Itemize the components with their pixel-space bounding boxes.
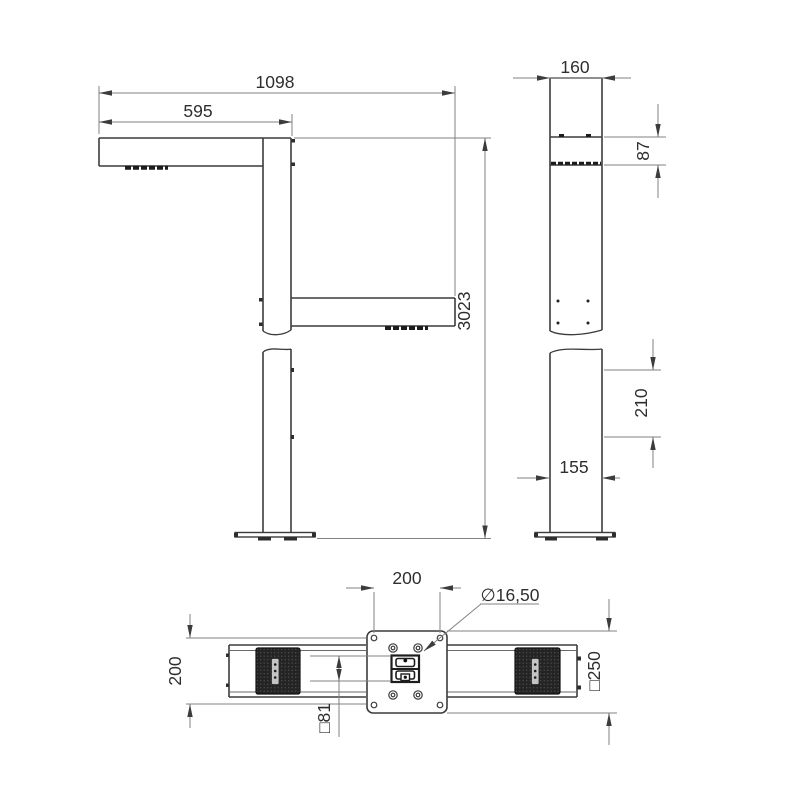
clamp-bolt [404, 676, 407, 679]
dim-front-arm-length: 595 [99, 101, 292, 136]
dim-front-total-width: 1098 [99, 72, 455, 296]
plan-view [226, 631, 581, 713]
dim-front-total-height: 3023 [294, 138, 491, 539]
front-view [99, 138, 455, 541]
break-line [263, 349, 291, 352]
arrowhead [606, 618, 611, 631]
beam-tab [226, 684, 229, 688]
arrowhead [602, 475, 615, 480]
bolt-dot [557, 322, 560, 325]
dim-label: 1098 [256, 72, 295, 92]
arrowhead [482, 138, 487, 151]
base-foot [596, 537, 608, 541]
dim-label: 595 [183, 101, 212, 121]
corner-hole [371, 702, 377, 708]
dim-label: □81 [314, 703, 334, 733]
dim-side-arm-thickness: 87 [604, 104, 666, 198]
dim-label: 160 [560, 57, 589, 77]
arrowhead [279, 119, 292, 124]
break-line [550, 330, 602, 335]
front-base-plate [234, 533, 316, 541]
arrowhead [655, 165, 660, 178]
column-pin [291, 368, 294, 372]
beam-tab [577, 657, 581, 661]
drawing-page: 1098 595 3023 160 [0, 0, 800, 800]
arrowhead [650, 437, 655, 450]
base-foot [284, 537, 297, 541]
base-foot [545, 537, 557, 541]
arrowhead [99, 119, 112, 124]
dim-label: 210 [631, 388, 651, 417]
arrowhead [442, 90, 455, 95]
tube-clamp [392, 656, 420, 683]
column-pin [291, 435, 294, 439]
arrowhead [99, 90, 112, 95]
break-line [550, 349, 602, 353]
front-top-arm [99, 138, 295, 168]
plan-grip-pad-right [515, 648, 560, 694]
dim-plan-hole-spacing-horizontal: 200 [346, 568, 461, 633]
dim-side-width-bottom: 155 [517, 457, 620, 481]
arrowhead [602, 75, 615, 80]
dim-label: 87 [633, 141, 653, 160]
arrowhead [440, 585, 453, 590]
front-lower-arm [259, 298, 455, 328]
technical-drawing: 1098 595 3023 160 [0, 0, 800, 800]
side-base-plate [534, 533, 616, 541]
dim-label: 200 [165, 656, 185, 685]
corner-hole [437, 702, 443, 708]
side-column-upper [550, 78, 602, 335]
dim-side-width-top: 160 [513, 57, 631, 81]
arrowhead [336, 656, 341, 668]
clamp-bolt [403, 659, 407, 663]
corner-hole [371, 635, 377, 641]
beam-tab [226, 654, 229, 658]
plan-mounting-plate [367, 631, 447, 713]
break-line [263, 330, 291, 335]
arrowhead [336, 669, 341, 681]
dim-label: □250 [584, 651, 604, 691]
base-foot [258, 537, 271, 541]
bolt-dot [587, 300, 590, 303]
front-column-lower [263, 349, 294, 533]
arrowhead [537, 75, 550, 80]
bolt-dot [557, 300, 560, 303]
arrowhead [361, 585, 374, 590]
arrowhead [606, 713, 611, 726]
beam-tab [577, 686, 581, 690]
dim-side-adjustment-range: 210 [604, 339, 661, 468]
arrowhead [536, 475, 549, 480]
dim-label: 155 [559, 457, 588, 477]
bolt-dot [587, 322, 590, 325]
arrowhead [482, 526, 487, 539]
arrowhead [187, 704, 192, 717]
front-column-upper [263, 138, 291, 335]
dim-label: 200 [392, 568, 421, 588]
dim-label: ∅16,50 [480, 585, 539, 605]
dim-label: 3023 [454, 292, 474, 331]
plan-grip-pad-left [256, 648, 300, 694]
arrowhead [187, 625, 192, 638]
arrowhead [655, 124, 660, 137]
arrowhead [650, 357, 655, 370]
side-column-lower [550, 349, 602, 533]
